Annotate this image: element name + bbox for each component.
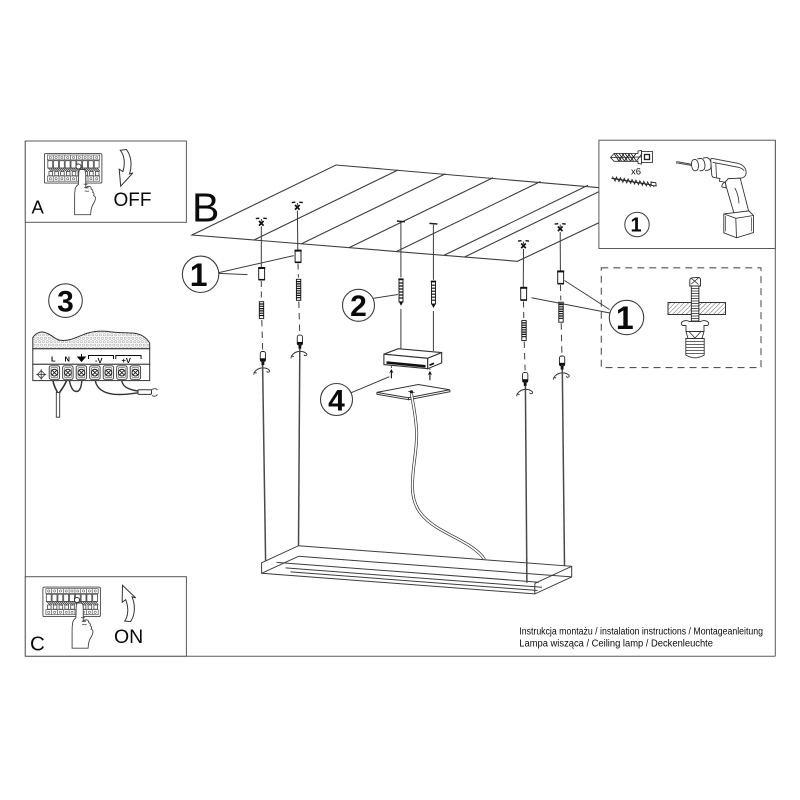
svg-text:1: 1 <box>616 300 634 336</box>
svg-text:+V: +V <box>122 356 131 365</box>
svg-text:4: 4 <box>328 384 345 417</box>
svg-text:1: 1 <box>630 215 641 237</box>
svg-text:L: L <box>51 355 56 364</box>
svg-text:1: 1 <box>190 257 208 293</box>
svg-text:Instrukcja montażu / instalati: Instrukcja montażu / instalation instruc… <box>519 627 763 638</box>
svg-text:B: B <box>192 185 219 231</box>
svg-text:OFF: OFF <box>114 190 152 211</box>
svg-text:Lampa wisząca / Ceiling lamp /: Lampa wisząca / Ceiling lamp / Deckenleu… <box>519 639 713 650</box>
svg-text:N: N <box>65 355 70 364</box>
svg-text:-V: -V <box>95 356 103 365</box>
svg-text:3: 3 <box>57 286 74 319</box>
svg-text:x6: x6 <box>631 167 641 178</box>
svg-text:ON: ON <box>114 626 143 648</box>
svg-text:C: C <box>30 633 45 656</box>
svg-text:2: 2 <box>350 290 367 323</box>
svg-text:A: A <box>32 197 45 218</box>
